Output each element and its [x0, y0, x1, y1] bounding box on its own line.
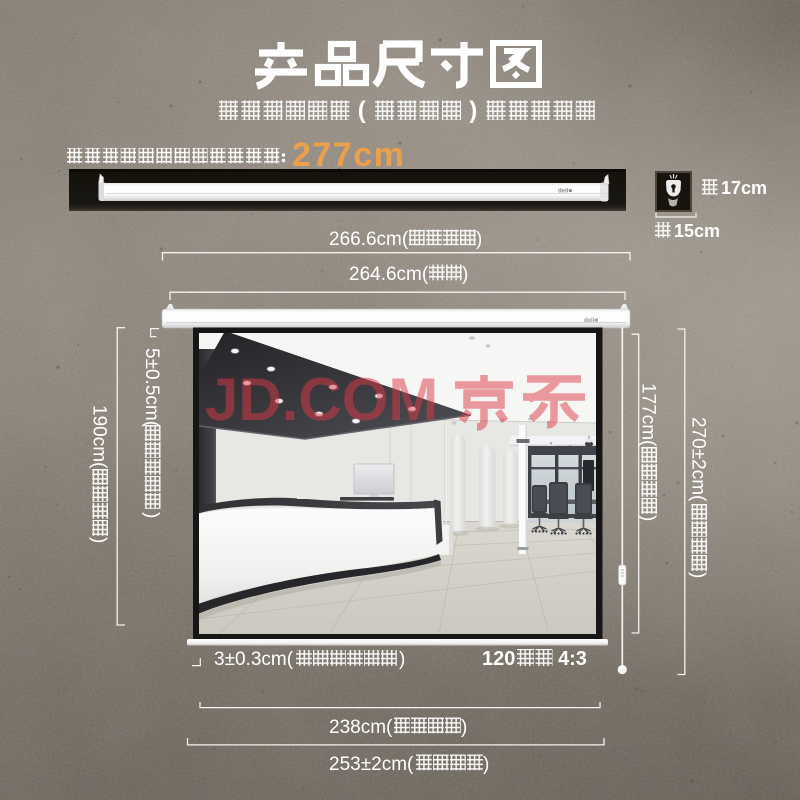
svg-text:266.6cm(: 266.6cm(	[329, 229, 409, 250]
svg-text:264.6cm(: 264.6cm(	[349, 264, 429, 285]
svg-text:): )	[461, 717, 467, 738]
svg-text:5±0.5cm(: 5±0.5cm(	[141, 348, 162, 428]
svg-text:): )	[638, 515, 659, 521]
svg-text:270±2cm(: 270±2cm(	[688, 417, 709, 502]
svg-text:): )	[141, 512, 162, 518]
svg-text:): )	[688, 572, 709, 578]
svg-text:(: (	[358, 97, 366, 124]
svg-text:JD.COM: JD.COM	[205, 366, 438, 433]
svg-text:120: 120	[482, 648, 515, 670]
svg-text:deli■: deli■	[558, 189, 572, 195]
svg-text:190cm(: 190cm(	[89, 405, 110, 469]
svg-text:17cm: 17cm	[721, 178, 767, 198]
svg-text:15cm: 15cm	[674, 221, 720, 241]
svg-text:): )	[476, 229, 482, 250]
svg-text:177cm(: 177cm(	[638, 383, 659, 447]
svg-text:4:3: 4:3	[558, 648, 587, 670]
svg-text:238cm(: 238cm(	[329, 717, 393, 738]
svg-text:deli■: deli■	[584, 318, 598, 324]
svg-text:253±2cm(: 253±2cm(	[329, 754, 414, 775]
svg-text:): )	[462, 264, 468, 285]
svg-text:3±0.3cm(: 3±0.3cm(	[214, 649, 294, 670]
svg-text:): )	[469, 97, 477, 124]
svg-text:): )	[483, 754, 489, 775]
svg-text:): )	[89, 537, 110, 543]
svg-text:277cm: 277cm	[292, 136, 405, 174]
svg-text:): )	[399, 649, 405, 670]
